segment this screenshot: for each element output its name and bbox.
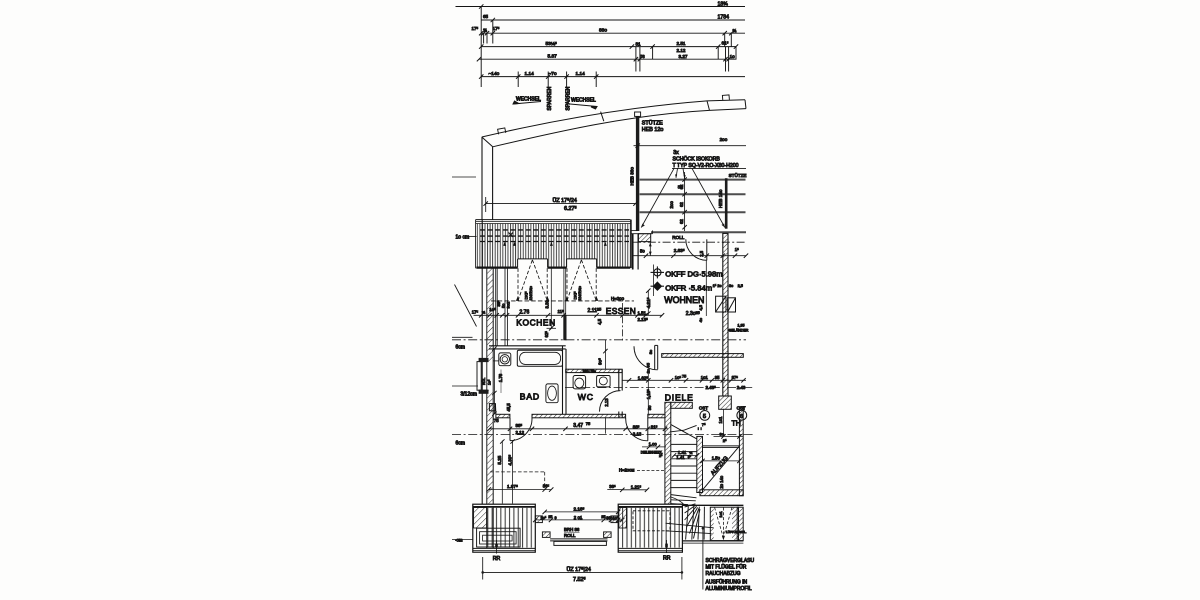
svg-text:2,5: 2,5	[738, 284, 743, 288]
svg-text:SPARREN: SPARREN	[547, 86, 553, 110]
svg-text:8o: 8o	[648, 349, 653, 354]
svg-text:9o⁵: 9o⁵	[598, 358, 603, 365]
svg-text:2.51: 2.51	[677, 41, 686, 46]
svg-text:1o⁵: 1o⁵	[488, 379, 492, 385]
svg-text:3⁵: 3⁵	[688, 455, 692, 459]
svg-text:2.63⁵: 2.63⁵	[674, 248, 685, 253]
svg-text:SCHÖCK ISOKORB: SCHÖCK ISOKORB	[673, 156, 721, 163]
svg-text:2.13⁵: 2.13⁵	[638, 317, 649, 322]
svg-text:25: 25	[548, 515, 552, 519]
svg-text:1,35: 1,35	[738, 324, 745, 328]
svg-text:RÜL: RÜL	[482, 378, 486, 385]
svg-text:17⁵: 17⁵	[493, 26, 500, 31]
svg-text:18¾: 18¾	[718, 2, 729, 8]
svg-text:36⁵: 36⁵	[609, 484, 616, 489]
svg-text:17⁵: 17⁵	[472, 310, 479, 315]
svg-text:BRH 75o: BRH 75o	[583, 370, 596, 374]
svg-text:1⁵: 1⁵	[735, 247, 739, 252]
svg-text:88⁵: 88⁵	[516, 423, 523, 428]
svg-text:2.13: 2.13	[604, 398, 609, 407]
svg-text:OKFR ·5.84m: OKFR ·5.84m	[665, 283, 712, 292]
svg-text:1o1: 1o1	[701, 375, 709, 380]
svg-text:6cm: 6cm	[456, 440, 465, 446]
svg-text:ÜZ 17⁵|24: ÜZ 17⁵|24	[567, 566, 591, 573]
svg-text:ESSEN: ESSEN	[606, 306, 636, 316]
svg-text:2.12: 2.12	[677, 48, 686, 53]
svg-text:65: 65	[483, 14, 489, 19]
svg-text:SCHRÄGVERGLASU: SCHRÄGVERGLASU	[706, 557, 755, 564]
svg-text:81: 81	[636, 41, 642, 46]
svg-text:1.14: 1.14	[576, 71, 586, 77]
svg-text:ALUMINIUMPROFIL: ALUMINIUMPROFIL	[706, 586, 752, 592]
svg-text:MIT FLÜGEL FÜR: MIT FLÜGEL FÜR	[706, 564, 747, 571]
svg-text:3x: 3x	[673, 150, 679, 156]
svg-text:3/12cm: 3/12cm	[461, 392, 477, 398]
svg-text:2 o1: 2 o1	[574, 515, 583, 520]
svg-text:OKFF DG·5.98m: OKFF DG·5.98m	[665, 270, 722, 279]
svg-text:75: 75	[586, 421, 591, 426]
svg-text:1.78: 1.78	[498, 373, 503, 382]
svg-text:95: 95	[645, 362, 650, 367]
svg-text:BRH 86: BRH 86	[564, 527, 580, 532]
svg-text:1.41: 1.41	[678, 450, 687, 455]
svg-text:1o1: 1o1	[719, 511, 723, 517]
svg-text:RAUCHABZUG: RAUCHABZUG	[706, 571, 741, 577]
svg-text:·om: ·om	[455, 538, 463, 543]
svg-text:2.11: 2.11	[588, 308, 598, 314]
svg-text:BAD: BAD	[520, 391, 540, 401]
svg-text:3.47: 3.47	[573, 423, 583, 429]
svg-text:2⁵: 2⁵	[659, 454, 663, 458]
svg-text:3o2: 3o2	[506, 301, 511, 308]
svg-text:62: 62	[679, 184, 684, 189]
svg-text:1o: 1o	[730, 54, 735, 59]
svg-text:2.12: 2.12	[516, 430, 525, 435]
svg-text:62: 62	[679, 202, 684, 207]
svg-text:2⁵: 2⁵	[723, 438, 727, 443]
svg-text:6cm: 6cm	[456, 344, 465, 350]
svg-text:75: 75	[682, 375, 686, 379]
svg-text:HEB 12o: HEB 12o	[642, 127, 664, 133]
svg-text:2,5: 2,5	[699, 250, 704, 256]
svg-text:H=2oo: H=2oo	[611, 296, 625, 301]
svg-text:25: 25	[597, 307, 602, 312]
svg-text:1o⁵: 1o⁵	[675, 375, 682, 380]
svg-text:ROLL: ROLL	[672, 235, 684, 240]
svg-text:DIELE: DIELE	[665, 392, 694, 402]
svg-text:AUSFÜHRUNG IN: AUSFÜHRUNG IN	[706, 579, 748, 586]
svg-text:WOHNEN: WOHNEN	[664, 295, 704, 305]
svg-text:2.13: 2.13	[633, 431, 642, 436]
svg-text:WC: WC	[578, 392, 594, 402]
svg-text:H=2ooм: H=2ooм	[619, 467, 634, 472]
svg-text:RR: RR	[493, 556, 501, 562]
svg-text:4.39⁵: 4.39⁵	[507, 455, 512, 466]
svg-text:2.16⁵: 2.16⁵	[574, 506, 585, 511]
svg-text:1o⁵: 1o⁵	[489, 307, 496, 312]
svg-text:STÜTZE: STÜTZE	[642, 120, 663, 127]
svg-text:9: 9	[555, 516, 557, 520]
svg-text:86⁵: 86⁵	[543, 483, 550, 488]
svg-text:2o: 2o	[645, 368, 650, 373]
svg-text:1.97⁵: 1.97⁵	[507, 484, 518, 489]
svg-text:4,5: 4,5	[597, 318, 602, 324]
svg-text:11⁵: 11⁵	[558, 309, 565, 314]
svg-text:2o 14o: 2o 14o	[719, 475, 724, 488]
svg-text:25: 25	[601, 515, 605, 519]
svg-text:¾: ¾	[733, 28, 737, 33]
svg-text:7.52⁵: 7.52⁵	[573, 577, 586, 583]
svg-text:4o: 4o	[698, 317, 703, 322]
svg-text:ÜZ 17⁵/24: ÜZ 17⁵/24	[553, 197, 577, 204]
svg-text:1.41: 1.41	[676, 455, 685, 460]
svg-text:HEB 36o: HEB 36o	[629, 167, 634, 186]
svg-text:7⁵: 7⁵	[702, 422, 706, 427]
svg-text:GELÄNDER: GELÄNDER	[729, 328, 749, 332]
svg-text:2oo: 2oo	[669, 201, 674, 209]
svg-text:2.76: 2.76	[520, 309, 530, 315]
svg-text:1784: 1784	[718, 15, 730, 21]
svg-text:1.5o: 1.5o	[712, 455, 721, 460]
svg-text:4,5: 4,5	[698, 304, 703, 310]
svg-text:STÜTZE: STÜTZE	[729, 172, 747, 178]
svg-text:OST: OST	[699, 405, 708, 410]
svg-text:1¼/1¼o: 1¼/1¼o	[528, 285, 533, 300]
svg-text:1.62⁵: 1.62⁵	[638, 376, 649, 381]
svg-text:2.3o: 2.3o	[686, 311, 696, 317]
svg-text:6.27⁵: 6.27⁵	[564, 206, 577, 212]
svg-text:53¼⁵: 53¼⁵	[546, 41, 557, 47]
svg-text:5o: 5o	[640, 249, 645, 254]
svg-text:2oo: 2oo	[720, 137, 728, 142]
svg-text:4.21⁵: 4.21⁵	[646, 297, 651, 308]
svg-text:81⁵: 81⁵	[651, 425, 658, 430]
svg-text:17⁵: 17⁵	[472, 26, 479, 31]
svg-text:KOCHEN: KOCHEN	[516, 318, 555, 328]
svg-text:1o1: 1o1	[718, 416, 723, 424]
svg-text:45,5: 45,5	[506, 403, 511, 412]
svg-text:WECHSEL: WECHSEL	[571, 98, 596, 104]
svg-text:~7o: ~7o	[549, 71, 557, 77]
svg-text:3.39: 3.39	[544, 300, 549, 309]
svg-text:2.43: 2.43	[737, 385, 746, 390]
svg-text:87⁵: 87⁵	[732, 375, 739, 380]
svg-text:5: 5	[703, 414, 706, 420]
svg-text:~14o: ~14o	[489, 71, 500, 77]
svg-text:5.87: 5.87	[548, 54, 558, 60]
svg-text:62⁵: 62⁵	[544, 331, 549, 338]
svg-text:1,13⁵: 1,13⁵	[646, 389, 651, 399]
svg-text:95: 95	[715, 375, 720, 380]
svg-text:RR: RR	[663, 555, 671, 561]
svg-text:1⁵ 2o: 1⁵ 2o	[713, 284, 722, 288]
svg-text:HEB 14o: HEB 14o	[718, 189, 723, 208]
svg-text:1.21⁵: 1.21⁵	[631, 484, 642, 489]
svg-text:75: 75	[494, 418, 499, 423]
svg-text:88⁵: 88⁵	[633, 425, 640, 430]
svg-text:1¼/1¼o: 1¼/1¼o	[577, 285, 582, 300]
svg-text:62: 62	[679, 219, 684, 224]
svg-text:ROLL: ROLL	[564, 533, 576, 538]
svg-text:3.27: 3.27	[679, 54, 688, 59]
svg-text:1.51: 1.51	[638, 311, 647, 316]
svg-text:9o: 9o	[647, 405, 652, 410]
svg-text:3o: 3o	[729, 284, 733, 288]
svg-text:2.43⁵: 2.43⁵	[706, 385, 717, 390]
svg-text:1o cm: 1o cm	[456, 235, 470, 241]
svg-text:1.14: 1.14	[525, 71, 535, 77]
svg-text:88o: 88o	[599, 27, 607, 33]
svg-text:5.25: 5.25	[497, 455, 502, 464]
